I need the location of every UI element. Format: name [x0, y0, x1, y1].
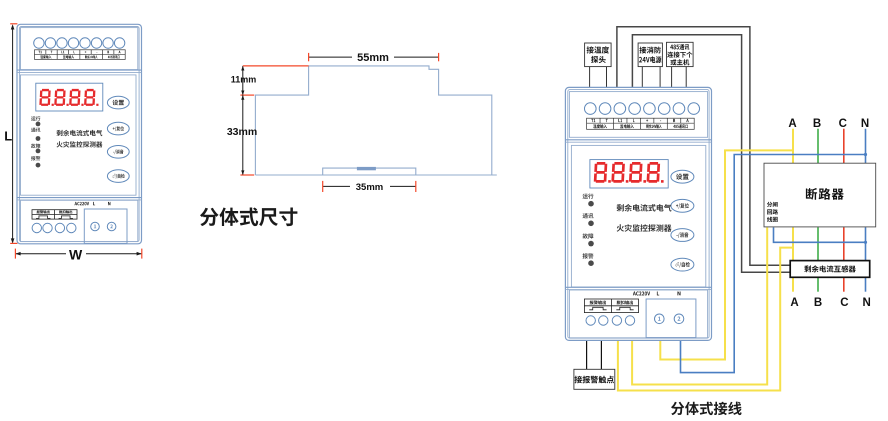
svg-text:B: B — [814, 297, 822, 309]
svg-text:N: N — [861, 118, 869, 130]
svg-text:N: N — [863, 297, 871, 309]
svg-text:A: A — [790, 297, 798, 309]
svg-text:11mm: 11mm — [231, 75, 257, 85]
svg-text:35mm: 35mm — [356, 182, 383, 193]
svg-text:C: C — [840, 297, 848, 309]
svg-text:A: A — [788, 118, 796, 130]
svg-text:55mm: 55mm — [357, 52, 389, 64]
svg-text:B: B — [813, 118, 821, 130]
svg-text:C: C — [839, 118, 847, 130]
svg-text:L: L — [4, 129, 12, 144]
svg-text:33mm: 33mm — [227, 126, 257, 138]
svg-text:W: W — [69, 246, 83, 262]
